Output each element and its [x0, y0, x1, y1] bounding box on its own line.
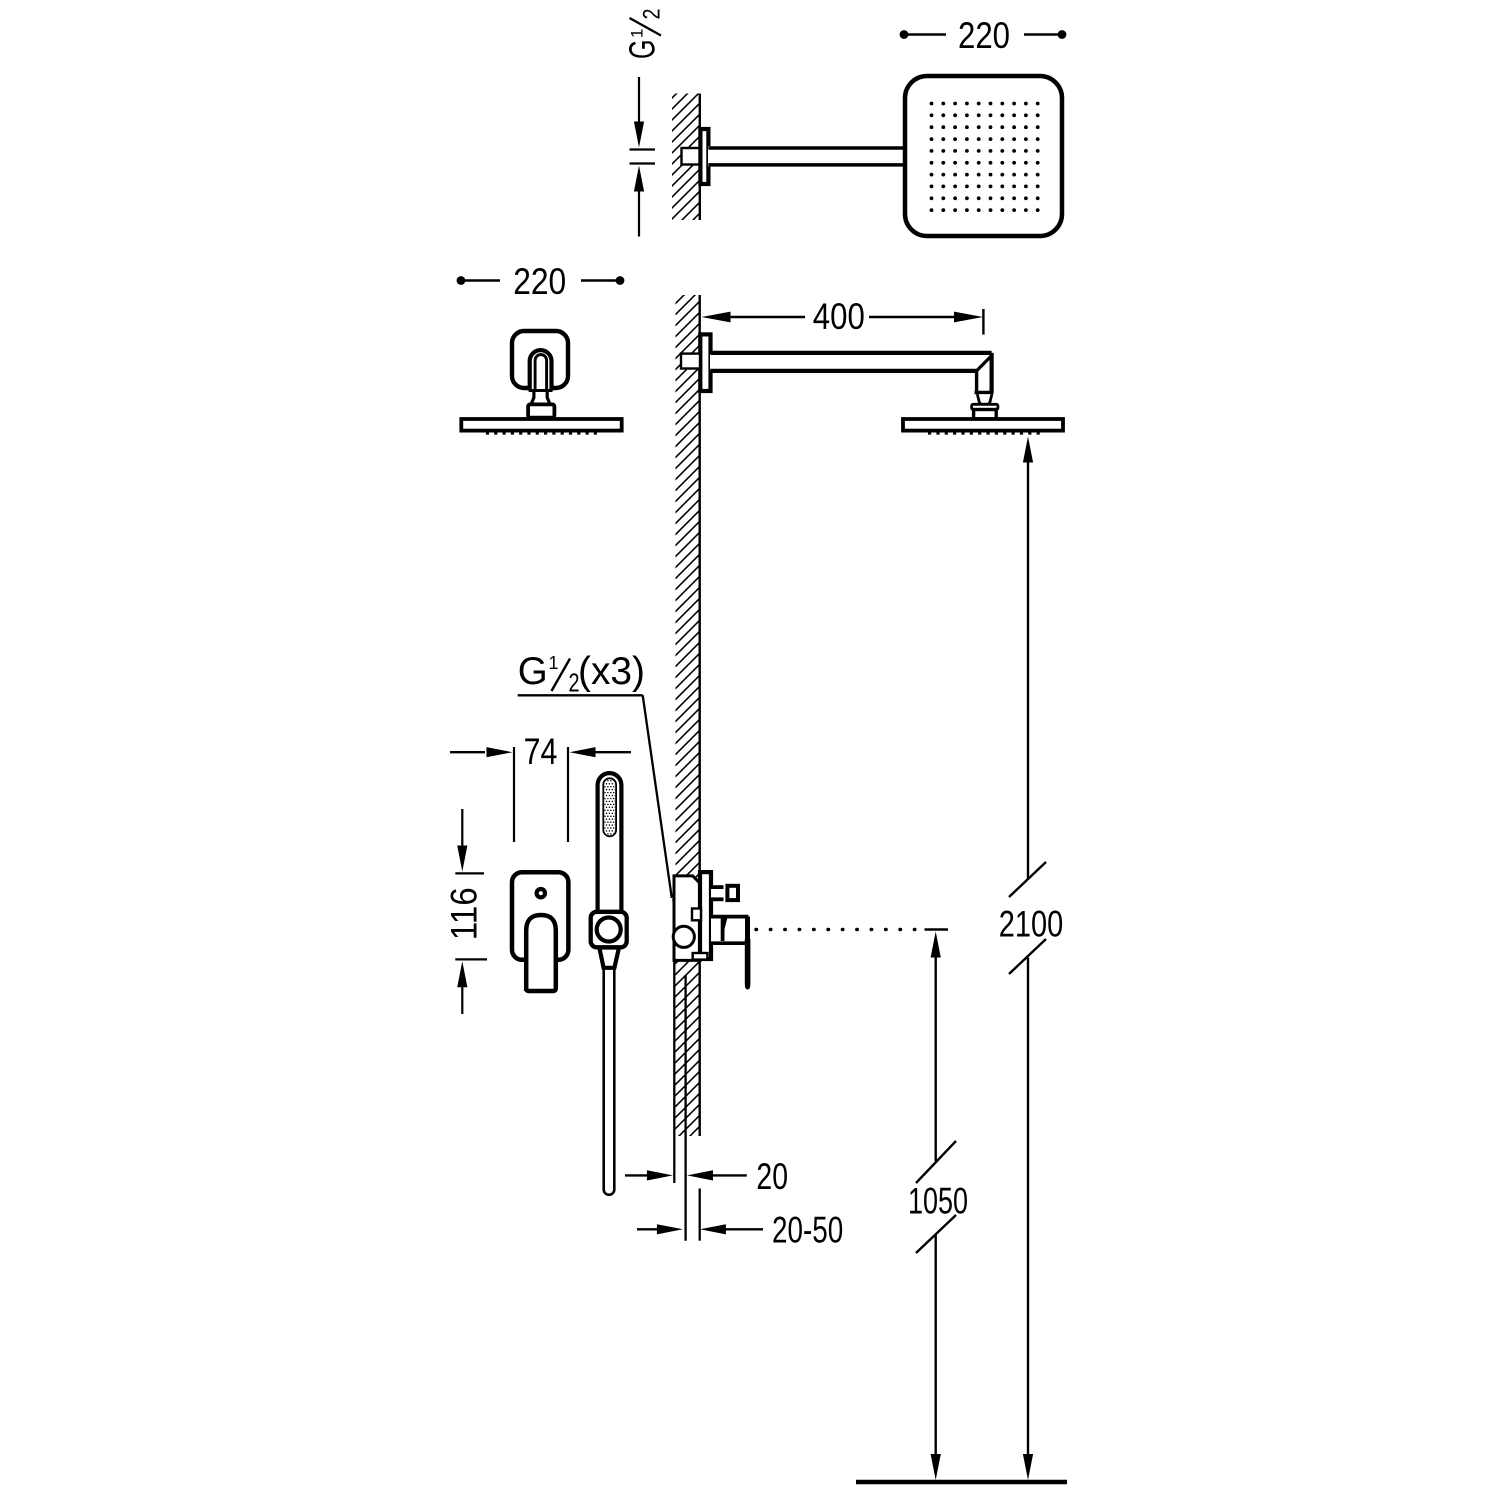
svg-text:74: 74 — [524, 730, 558, 772]
svg-text:220: 220 — [958, 14, 1010, 56]
svg-text:1: 1 — [549, 653, 559, 673]
svg-text:20-50: 20-50 — [772, 1209, 843, 1251]
svg-text:G: G — [518, 650, 548, 693]
svg-text:20: 20 — [756, 1155, 788, 1197]
svg-text:2: 2 — [639, 9, 666, 20]
svg-text:1: 1 — [628, 29, 647, 38]
svg-text:400: 400 — [813, 295, 865, 337]
svg-text:(x3): (x3) — [578, 650, 645, 693]
svg-text:116: 116 — [443, 887, 485, 940]
svg-text:220: 220 — [513, 260, 566, 302]
svg-text:1050: 1050 — [908, 1180, 968, 1222]
svg-text:G: G — [622, 40, 663, 60]
svg-text:2100: 2100 — [999, 903, 1063, 945]
